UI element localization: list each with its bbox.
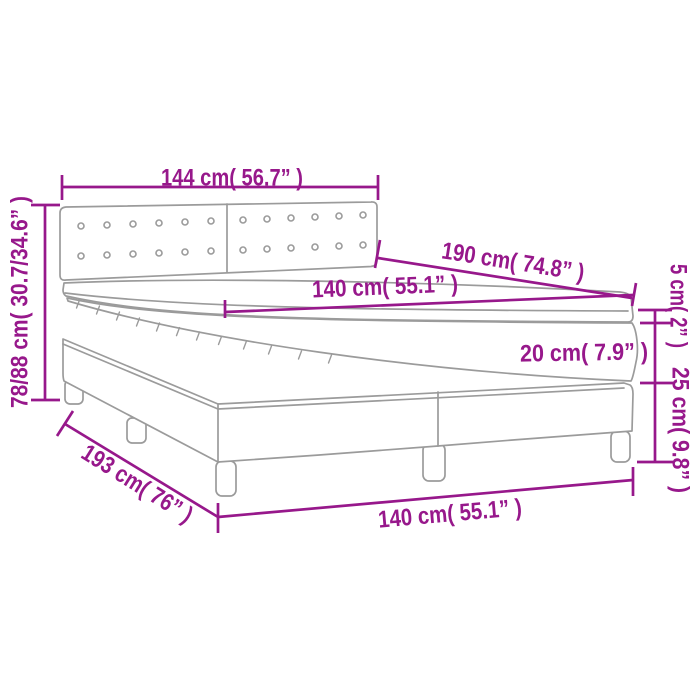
leg-front-right (611, 431, 630, 462)
dim-headboard-height: 78/88 cm( 30.7/34.6” ) (7, 196, 61, 408)
leg-front-center (423, 444, 445, 481)
dim-total-length-label: 193 cm( 76” ) (76, 439, 197, 529)
diagram-canvas: 144 cm( 56.7” ) 78/88 cm( 30.7/34.6” ) 1… (0, 0, 700, 700)
dim-mattress-height-label: 20 cm( 7.9” ) (520, 338, 648, 367)
dim-base-height-label: 25 cm( 9.8” ) (667, 367, 694, 493)
dim-right-bracket: 5 cm( 2” ) 25 cm( 9.8” ) (637, 264, 694, 493)
headboard-outline (60, 202, 377, 280)
leg-front-left (216, 461, 236, 496)
dim-topper-height-label: 5 cm( 2” ) (665, 264, 692, 348)
dim-headboard-width: 144 cm( 56.7” ) (62, 165, 378, 201)
headboard (60, 202, 377, 280)
dim-headboard-height-label: 78/88 cm( 30.7/34.6” ) (7, 196, 34, 408)
dim-headboard-width-label: 144 cm( 56.7” ) (161, 165, 303, 192)
bed-dimension-diagram: 144 cm( 56.7” ) 78/88 cm( 30.7/34.6” ) 1… (0, 0, 700, 700)
